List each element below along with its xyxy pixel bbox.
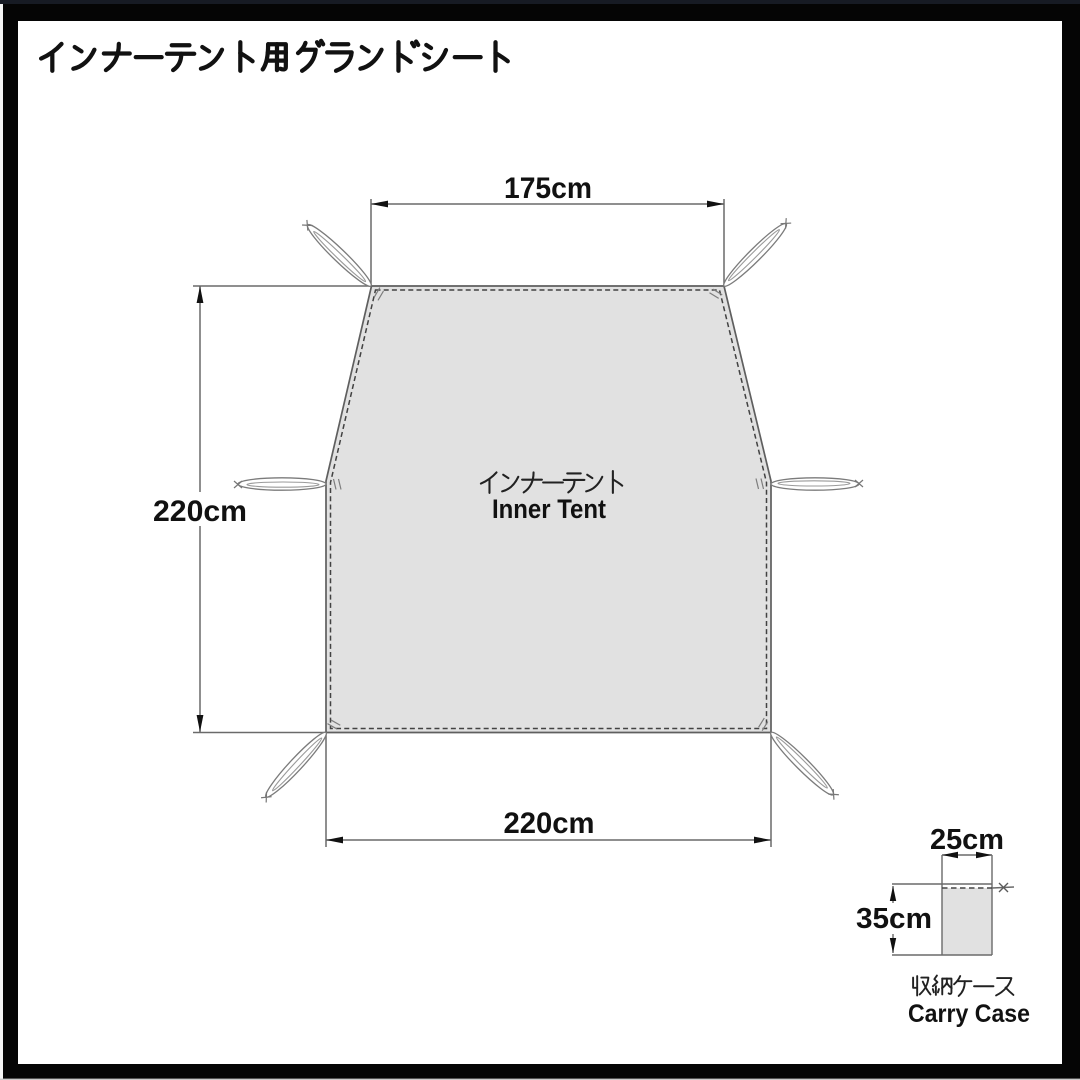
svg-text:175cm: 175cm <box>504 172 592 205</box>
svg-text:Inner Tent: Inner Tent <box>492 494 606 524</box>
svg-text:220cm: 220cm <box>153 495 247 528</box>
svg-text:35cm: 35cm <box>856 903 932 935</box>
svg-text:25cm: 25cm <box>930 824 1004 856</box>
svg-text:220cm: 220cm <box>504 807 595 840</box>
svg-text:Carry Case: Carry Case <box>908 1000 1030 1028</box>
